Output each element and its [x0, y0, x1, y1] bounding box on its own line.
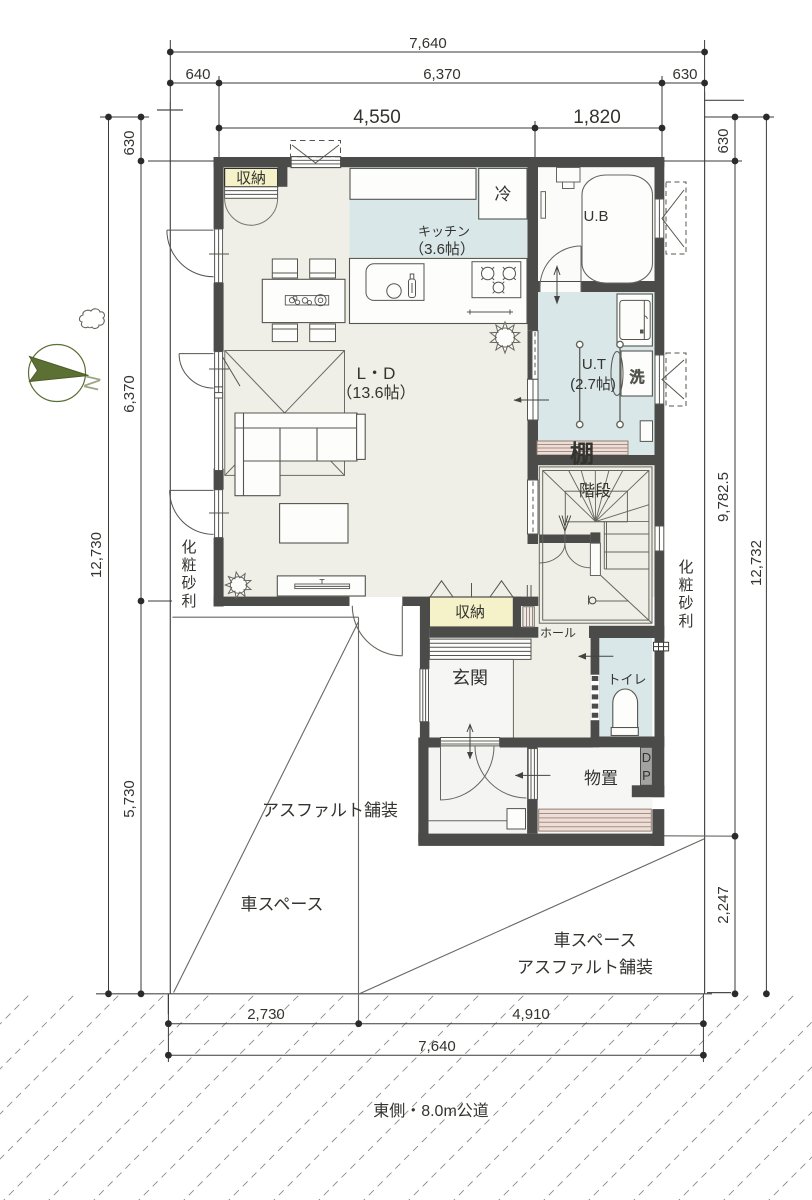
svg-text:化: 化	[181, 539, 196, 556]
svg-text:D: D	[642, 750, 651, 765]
svg-text:L・D: L・D	[357, 364, 396, 383]
svg-text:6,370: 6,370	[423, 66, 461, 83]
svg-text:利: 利	[678, 613, 693, 630]
svg-text:U.B: U.B	[583, 208, 608, 225]
svg-text:キッチン: キッチン	[418, 224, 470, 239]
svg-text:630: 630	[672, 66, 697, 83]
svg-text:U.T: U.T	[582, 356, 606, 373]
svg-text:7,640: 7,640	[409, 35, 447, 52]
svg-text:東側・8.0m公道: 東側・8.0m公道	[373, 1102, 489, 1120]
svg-text:4,550: 4,550	[353, 107, 401, 128]
svg-text:ホール: ホール	[540, 626, 576, 640]
svg-text:砂: 砂	[678, 595, 693, 612]
svg-text:1,820: 1,820	[573, 107, 621, 128]
svg-text:車スペース: 車スペース	[241, 895, 324, 914]
svg-text:7,640: 7,640	[418, 1038, 456, 1055]
svg-text:アスファルト舗装: アスファルト舗装	[517, 958, 653, 977]
svg-text:粧: 粧	[678, 577, 693, 594]
svg-text:化: 化	[678, 559, 693, 576]
svg-text:9,782.5: 9,782.5	[715, 472, 732, 522]
svg-text:2,247: 2,247	[715, 886, 732, 924]
svg-text:4,910: 4,910	[512, 1006, 550, 1023]
svg-text:階段: 階段	[579, 482, 611, 500]
svg-text:物置: 物置	[584, 769, 618, 788]
svg-text:アスファルト舗装: アスファルト舗装	[262, 801, 398, 820]
svg-text:粧: 粧	[181, 557, 196, 574]
svg-text:（13.6帖）: （13.6帖）	[336, 384, 415, 402]
svg-text:12,732: 12,732	[748, 540, 765, 586]
svg-text:630: 630	[121, 130, 138, 155]
svg-text:640: 640	[185, 66, 210, 83]
svg-text:車スペース: 車スペース	[554, 931, 637, 950]
svg-text:砂: 砂	[181, 575, 196, 592]
svg-text:収納: 収納	[236, 170, 266, 187]
svg-text:洗: 洗	[629, 369, 644, 386]
svg-text:収納: 収納	[455, 604, 485, 621]
svg-text:トイレ: トイレ	[607, 672, 646, 687]
svg-text:630: 630	[715, 128, 732, 153]
svg-text:棚: 棚	[570, 440, 594, 468]
svg-text:2,730: 2,730	[247, 1006, 285, 1023]
svg-text:利: 利	[181, 593, 196, 610]
svg-text:P: P	[642, 768, 651, 783]
svg-text:(2.7帖): (2.7帖)	[570, 376, 616, 393]
svg-text:冷: 冷	[495, 185, 512, 204]
svg-text:12,730: 12,730	[88, 532, 105, 578]
svg-text:6,370: 6,370	[121, 375, 138, 413]
svg-text:玄関: 玄関	[452, 668, 488, 688]
svg-text:（3.6帖）: （3.6帖）	[409, 241, 475, 258]
svg-text:5,730: 5,730	[121, 780, 138, 818]
